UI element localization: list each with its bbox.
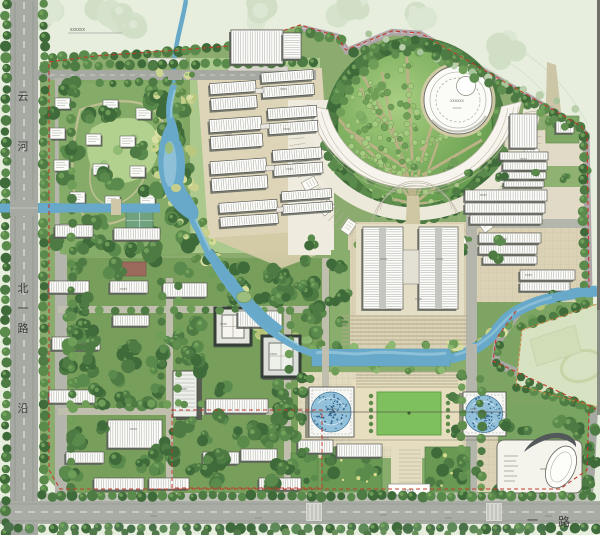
svg-text:xxxx: xxxx xyxy=(286,167,293,171)
svg-text:xxxx: xxxx xyxy=(480,193,487,197)
svg-text:xxxx: xxxx xyxy=(270,352,277,356)
svg-text:xxxx: xxxx xyxy=(415,297,422,301)
svg-text:xxxx: xxxx xyxy=(280,87,287,91)
svg-text:xxxx: xxxx xyxy=(500,237,507,241)
svg-text:xxxx: xxxx xyxy=(525,273,532,277)
svg-text:xxxx: xxxx xyxy=(330,407,337,411)
svg-text:xxxx: xxxx xyxy=(230,212,237,216)
svg-text:xxxx: xxxx xyxy=(520,157,527,161)
svg-text:xxxx: xxxx xyxy=(180,387,187,391)
svg-text:xxxx: xxxx xyxy=(222,173,229,177)
svg-text:xxxx: xxxx xyxy=(470,407,477,411)
svg-text:xxxxxx: xxxxxx xyxy=(450,98,464,103)
svg-text:一: 一 xyxy=(527,515,538,527)
svg-text:xxxx: xxxx xyxy=(150,514,157,518)
svg-text:xxxx: xxxx xyxy=(80,342,87,346)
svg-text:xxxx: xxxx xyxy=(283,127,290,131)
svg-text:xxxx: xxxx xyxy=(255,516,262,520)
svg-text:xxxx: xxxx xyxy=(120,287,127,291)
svg-text:xxxxx: xxxxx xyxy=(453,106,462,110)
svg-text:xxxx: xxxx xyxy=(540,467,547,471)
svg-text:一: 一 xyxy=(18,303,29,315)
svg-text:xxxx: xxxx xyxy=(380,513,387,517)
svg-text:xxxx: xxxx xyxy=(225,132,232,136)
svg-text:路: 路 xyxy=(18,322,29,335)
svg-text:xxxx: xxxx xyxy=(220,322,227,326)
svg-text:路: 路 xyxy=(558,514,570,529)
svg-text:xxxx: xxxx xyxy=(445,516,452,520)
svg-text:河: 河 xyxy=(18,140,29,153)
svg-text:xxxx: xxxx xyxy=(228,92,235,96)
svg-text:沿: 沿 xyxy=(18,402,29,415)
svg-text:北: 北 xyxy=(18,282,29,295)
svg-text:云: 云 xyxy=(18,91,29,103)
svg-text:xxxx: xxxx xyxy=(130,427,137,431)
svg-text:xxxx: xxxx xyxy=(380,257,387,261)
svg-text:xxxxxx: xxxxxx xyxy=(70,27,86,33)
svg-text:xxxx: xxxx xyxy=(545,514,552,518)
svg-text:xxxx: xxxx xyxy=(436,257,443,261)
